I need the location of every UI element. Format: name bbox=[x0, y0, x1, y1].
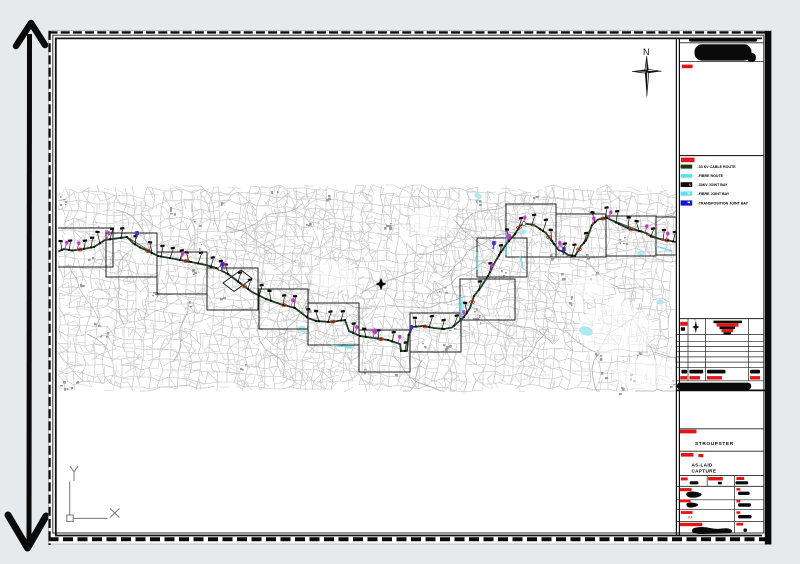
svg-text:-33KV JOINT BAY: -33KV JOINT BAY bbox=[698, 183, 729, 187]
svg-text:N: N bbox=[643, 47, 650, 57]
svg-text:-FIBRE JOINT BAY: -FIBRE JOINT BAY bbox=[698, 192, 730, 196]
svg-text:STROUPSTER: STROUPSTER bbox=[695, 441, 734, 447]
svg-text:-33 KV CABLE ROUTE: -33 KV CABLE ROUTE bbox=[698, 165, 737, 169]
svg-text:CAPTURE: CAPTURE bbox=[692, 468, 717, 473]
svg-text:-TRANSPOSITION JOINT BAY: -TRANSPOSITION JOINT BAY bbox=[698, 201, 749, 205]
svg-text:AS-LAID: AS-LAID bbox=[692, 463, 713, 468]
svg-text:-FIBRE ROUTE: -FIBRE ROUTE bbox=[698, 174, 724, 178]
